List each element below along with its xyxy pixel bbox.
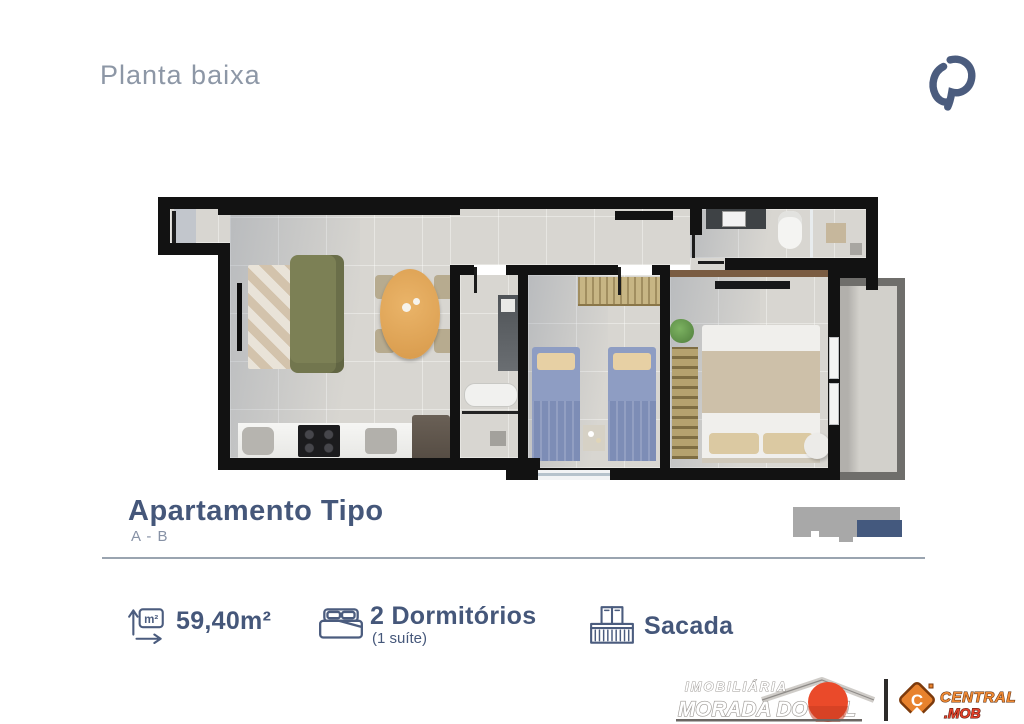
suite-blanket (702, 351, 820, 413)
keyplan-highlight-unit (857, 520, 902, 537)
bathroom-sink (501, 299, 515, 312)
bed-icon (316, 606, 366, 646)
section-divider (102, 557, 925, 559)
headboard (702, 458, 820, 463)
bedrooms-note: (1 suíte) (372, 630, 427, 647)
unit-subtitle: A - B (131, 528, 169, 545)
blanket (608, 401, 656, 461)
nightstand-item (596, 438, 601, 443)
area-value: 59,40m² (176, 607, 271, 636)
wall-shelf (615, 211, 673, 220)
unit-title: Apartamento Tipo (128, 495, 384, 528)
suite-bath-sink (722, 211, 746, 227)
blanket (532, 401, 580, 461)
agency-logo-morada-do-sol: IMOBILIÁRIA MORADA DO SOL (662, 676, 877, 722)
shower-mat (826, 223, 846, 243)
area-icon-label: m² (144, 614, 158, 626)
page-title: Planta baixa (100, 60, 261, 91)
stool (804, 433, 830, 459)
suite-shelf (670, 270, 828, 277)
balcony-glass-door (829, 383, 839, 425)
dining-table (380, 269, 440, 359)
toilet (778, 211, 802, 249)
plant (670, 319, 694, 343)
bedroom2-window-glass (538, 473, 610, 476)
sofa (290, 255, 344, 373)
wall-corridor-b (506, 265, 618, 275)
platform-logo-line1: CENTRAL (940, 689, 1016, 706)
table-plate (413, 298, 420, 305)
nightstand-item (588, 431, 594, 437)
floor-plan (150, 197, 908, 480)
footer-logo-divider (884, 679, 888, 721)
nightstand (583, 425, 605, 451)
tv-suite (715, 281, 790, 289)
suite-bath-door (692, 235, 695, 258)
wall-corridor-c (652, 265, 660, 275)
balcony-glass-door (829, 337, 839, 379)
balcony-rail-right (897, 278, 905, 480)
wall-bottom-left (218, 458, 518, 470)
bedroom2-door (618, 267, 621, 295)
wall-living-bath (450, 265, 460, 458)
fridge-cabinet (412, 415, 450, 463)
building-keyplan (793, 505, 907, 543)
shower-drain (850, 243, 862, 255)
kitchen-sink (242, 427, 274, 455)
platform-logo-monogram: C (911, 691, 923, 710)
entry-shadow (174, 209, 196, 243)
agency-logo-line1: IMOBILIÁRIA (685, 679, 787, 694)
platform-logo-central-mob: C CENTRAL .MOB (896, 678, 1022, 722)
pillow (613, 353, 651, 370)
platform-logo-line2: .MOB (944, 705, 981, 721)
wall-suite-bath-left (690, 209, 702, 235)
balcony-value: Sacada (644, 612, 733, 641)
wall-top-living (218, 197, 460, 215)
toilet-1 (490, 431, 506, 446)
balcony-floor (840, 286, 897, 472)
bathtub (464, 383, 518, 407)
wall-bath-bedroom2 (518, 265, 528, 470)
ladder-shelf (672, 347, 698, 459)
wall-left (218, 243, 230, 470)
wall-corridor-a (460, 265, 474, 275)
bathroom-door (474, 267, 477, 293)
bedrooms-value: 2 Dormitórios (370, 602, 536, 631)
balcony-rail-bottom (840, 472, 905, 480)
kitchen-sink-2 (365, 428, 397, 454)
pillow (537, 353, 575, 370)
brand-p-logo-icon (922, 50, 980, 116)
entry-door (172, 211, 176, 243)
keyplan-tab (839, 537, 853, 542)
pillow (709, 433, 759, 454)
area-dimensions-icon: m² (126, 602, 168, 644)
shower-glass (810, 209, 813, 258)
keyplan-notch (811, 531, 819, 537)
table-plate (402, 303, 411, 312)
suite-door (698, 261, 724, 264)
wall-corner-patch (828, 258, 878, 278)
wall-bedroom2-suite (660, 265, 670, 480)
cooktop (298, 425, 340, 457)
balcony-icon (588, 604, 636, 648)
shower-rail (462, 411, 518, 414)
tv-living (237, 283, 242, 351)
